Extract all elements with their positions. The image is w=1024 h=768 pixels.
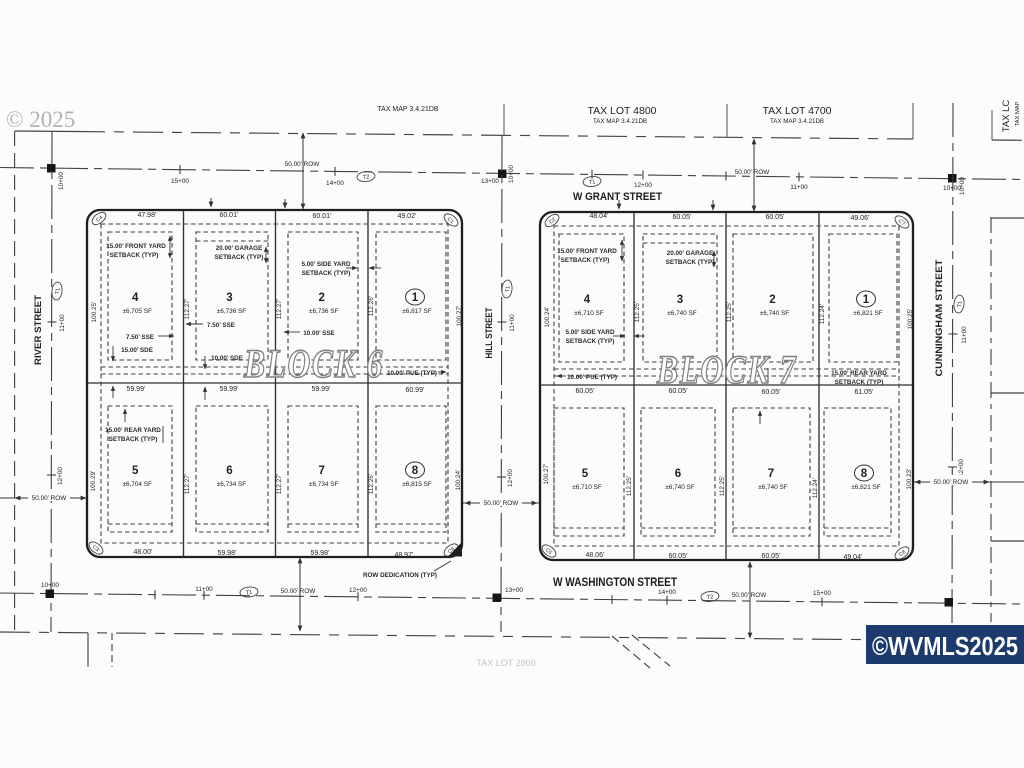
svg-text:TAX LOT 4800: TAX LOT 4800 [587, 105, 656, 117]
svg-text:7.50’ SSE: 7.50’ SSE [126, 334, 154, 341]
svg-text:48.97’: 48.97’ [394, 552, 414, 559]
svg-text:20.00’ GARAGE: 20.00’ GARAGE [667, 250, 714, 257]
svg-text:49.02’: 49.02’ [397, 213, 417, 220]
svg-text:15.00’ FRONT YARD: 15.00’ FRONT YARD [557, 248, 617, 255]
svg-text:8: 8 [861, 468, 868, 480]
svg-text:±6,740 SF: ±6,740 SF [667, 310, 697, 317]
svg-text:112.27’: 112.27’ [184, 473, 191, 494]
svg-text:59.98’: 59.98’ [217, 550, 237, 557]
svg-text:±6,734 SF: ±6,734 SF [309, 481, 339, 488]
svg-text:TAX MAP 3.4.21DB: TAX MAP 3.4.21DB [593, 118, 647, 125]
svg-text:BLOCK 6: BLOCK 6 [243, 341, 384, 386]
svg-text:TAX MAP: TAX MAP [1015, 101, 1021, 126]
svg-text:15+00: 15+00 [171, 178, 189, 185]
svg-text:HILL STREET: HILL STREET [484, 307, 495, 358]
svg-text:±6,817 SF: ±6,817 SF [402, 308, 432, 315]
svg-text:SETBACK (TYP): SETBACK (TYP) [561, 257, 610, 264]
svg-text:±6,734 SF: ±6,734 SF [217, 481, 247, 488]
svg-text:112.25’: 112.25’ [726, 301, 733, 322]
svg-text:T1: T1 [246, 590, 253, 597]
svg-text:10.00’ PUE (TYP): 10.00’ PUE (TYP) [387, 370, 437, 377]
svg-text:5.00’ SIDE YARD: 5.00’ SIDE YARD [301, 261, 350, 268]
svg-text:112.26’: 112.26’ [368, 295, 375, 316]
svg-text:T1: T1 [589, 179, 596, 186]
svg-text:12+00: 12+00 [634, 182, 652, 189]
svg-text:60.01’: 60.01’ [312, 213, 332, 220]
svg-text:100.25’: 100.25’ [907, 308, 914, 330]
svg-text:15.00’ SDE: 15.00’ SDE [121, 347, 153, 354]
svg-text:±6,736 SF: ±6,736 SF [309, 308, 339, 315]
svg-text:5: 5 [582, 468, 589, 480]
svg-text:48.06’: 48.06’ [585, 552, 605, 559]
svg-text:©WVMLS2025: ©WVMLS2025 [872, 631, 1018, 661]
svg-text:T1: T1 [505, 286, 512, 293]
svg-text:112.26’: 112.26’ [368, 473, 375, 494]
svg-text:W GRANT STREET: W GRANT STREET [573, 191, 662, 203]
svg-text:T1: T1 [957, 301, 964, 308]
svg-text:48.00’: 48.00’ [133, 549, 153, 556]
svg-text:±6,710 SF: ±6,710 SF [574, 310, 604, 317]
svg-text:49.06’: 49.06’ [850, 215, 870, 222]
svg-text:11+00: 11+00 [59, 314, 66, 332]
svg-text:47.98’: 47.98’ [137, 212, 157, 219]
svg-text:60.05’: 60.05’ [765, 214, 785, 221]
svg-text:2: 2 [318, 292, 324, 304]
svg-text:59.99’: 59.99’ [311, 386, 331, 393]
svg-text:BLOCK 7: BLOCK 7 [656, 347, 797, 392]
svg-text:±6,705 SF: ±6,705 SF [122, 308, 152, 315]
svg-text:60.05’: 60.05’ [761, 553, 781, 560]
svg-text:48.04’: 48.04’ [589, 213, 609, 220]
svg-text:12+00: 12+00 [507, 469, 514, 487]
svg-text:10.00’ PUE (TYP): 10.00’ PUE (TYP) [567, 374, 617, 381]
svg-text:15.00’ REAR YARD: 15.00’ REAR YARD [831, 370, 887, 377]
svg-text:RIVER STREET: RIVER STREET [33, 295, 44, 365]
svg-text:T2: T2 [363, 174, 370, 181]
svg-text:4: 4 [584, 294, 591, 306]
svg-text:50.00’ ROW: 50.00’ ROW [281, 588, 317, 595]
svg-text:CUNNINGHAM STREET: CUNNINGHAM STREET [934, 259, 945, 376]
svg-text:61.05’: 61.05’ [854, 389, 874, 396]
svg-text:±6,815 SF: ±6,815 SF [402, 481, 432, 488]
svg-text:SETBACK (TYP): SETBACK (TYP) [302, 270, 351, 277]
svg-text:10.00’ SDE: 10.00’ SDE [211, 355, 243, 362]
svg-text:T1: T1 [55, 288, 62, 295]
svg-text:5.00’ SIDE YARD: 5.00’ SIDE YARD [565, 329, 614, 336]
svg-text:±6,740 SF: ±6,740 SF [760, 310, 790, 317]
svg-text:59.98’: 59.98’ [310, 550, 330, 557]
svg-text:60.05’: 60.05’ [575, 388, 595, 395]
svg-text:50.00’ ROW: 50.00’ ROW [32, 495, 68, 502]
svg-text:112.24’: 112.24’ [812, 477, 819, 498]
svg-text:TAX LOT 2900: TAX LOT 2900 [476, 658, 535, 668]
svg-text:8: 8 [412, 465, 419, 477]
svg-text:T2: T2 [707, 594, 714, 601]
svg-text:100.27’: 100.27’ [543, 463, 550, 485]
svg-text:SETBACK (TYP): SETBACK (TYP) [666, 259, 715, 266]
svg-text:10+00: 10+00 [508, 165, 515, 183]
svg-text:SETBACK (TYP): SETBACK (TYP) [110, 252, 159, 259]
svg-text:100.23’: 100.23’ [906, 468, 913, 490]
svg-text:3: 3 [677, 294, 683, 306]
svg-text:11+00: 11+00 [195, 586, 213, 593]
svg-text:TAX MAP 3.4.21DB: TAX MAP 3.4.21DB [770, 118, 824, 125]
svg-text:±6,821 SF: ±6,821 SF [851, 484, 881, 491]
svg-text:6: 6 [226, 465, 232, 477]
svg-text:±6,704 SF: ±6,704 SF [122, 481, 152, 488]
svg-text:112.25’: 112.25’ [634, 301, 641, 322]
svg-text:SETBACK (TYP): SETBACK (TYP) [215, 254, 264, 261]
svg-text:49.04’: 49.04’ [843, 554, 863, 561]
svg-text:10.00’ SSE: 10.00’ SSE [303, 330, 335, 337]
svg-text:100.24’: 100.24’ [544, 306, 551, 328]
svg-text:4: 4 [132, 292, 139, 304]
svg-text:59.99’: 59.99’ [219, 386, 239, 393]
svg-text:±6,710 SF: ±6,710 SF [572, 484, 602, 491]
svg-text:SETBACK (TYP): SETBACK (TYP) [835, 379, 884, 386]
svg-text:TAX LC: TAX LC [1001, 100, 1012, 133]
svg-text:15.00’ FRONT YARD: 15.00’ FRONT YARD [106, 243, 166, 250]
svg-text:112.25’: 112.25’ [719, 475, 726, 496]
svg-text:±6,740 SF: ±6,740 SF [665, 484, 695, 491]
svg-text:6: 6 [675, 468, 681, 480]
svg-text:50.00’ ROW: 50.00’ ROW [934, 479, 970, 486]
svg-text:100.25’: 100.25’ [91, 301, 98, 323]
svg-text:2: 2 [769, 294, 775, 306]
svg-text:±6,740 SF: ±6,740 SF [758, 484, 788, 491]
svg-text:±6,821 SF: ±6,821 SF [853, 310, 883, 317]
svg-text:12+00: 12+00 [958, 459, 965, 477]
svg-text:11+00: 11+00 [790, 184, 808, 191]
svg-text:100.24’: 100.24’ [455, 469, 462, 491]
svg-text:11+00: 11+00 [961, 326, 968, 344]
svg-text:60.05’: 60.05’ [668, 553, 688, 560]
svg-text:W WASHINGTON STREET: W WASHINGTON STREET [553, 575, 678, 589]
svg-text:50.00’ ROW: 50.00’ ROW [735, 169, 771, 176]
svg-text:100.29’: 100.29’ [90, 470, 97, 492]
svg-text:3: 3 [226, 292, 232, 304]
svg-text:100.27’: 100.27’ [456, 305, 463, 327]
svg-text:±6,736 SF: ±6,736 SF [217, 308, 247, 315]
svg-text:50.00’ ROW: 50.00’ ROW [732, 592, 768, 599]
svg-text:1: 1 [863, 294, 870, 306]
svg-text:12+00: 12+00 [57, 467, 64, 485]
svg-text:© 2025: © 2025 [6, 107, 75, 132]
svg-text:7.50’ SSE: 7.50’ SSE [207, 322, 235, 329]
svg-text:10+00: 10+00 [959, 177, 966, 195]
svg-text:60.05’: 60.05’ [672, 214, 692, 221]
svg-text:12+00: 12+00 [349, 587, 367, 594]
svg-text:15+00: 15+00 [813, 590, 831, 597]
svg-text:13+00: 13+00 [505, 587, 523, 594]
svg-text:15.00’ REAR YARD: 15.00’ REAR YARD [105, 427, 161, 434]
svg-text:1: 1 [412, 292, 419, 304]
svg-text:TAX LOT 4700: TAX LOT 4700 [762, 105, 831, 117]
svg-text:14+00: 14+00 [326, 180, 344, 187]
svg-text:SETBACK (TYP): SETBACK (TYP) [109, 436, 158, 443]
svg-text:60.99’: 60.99’ [405, 387, 425, 394]
svg-text:TAX MAP 3.4.21DB: TAX MAP 3.4.21DB [377, 106, 439, 113]
svg-text:20.00’ GARAGE: 20.00’ GARAGE [216, 245, 263, 252]
svg-text:112.27’: 112.27’ [276, 298, 283, 319]
svg-text:112.25’: 112.25’ [626, 475, 633, 496]
svg-text:7: 7 [318, 465, 324, 477]
svg-text:ROW DEDICATION (TYP): ROW DEDICATION (TYP) [363, 572, 437, 579]
svg-text:10+00: 10+00 [41, 582, 59, 589]
svg-text:10+00: 10+00 [58, 172, 65, 190]
svg-text:112.27’: 112.27’ [276, 473, 283, 494]
svg-text:5: 5 [132, 465, 139, 477]
svg-text:50.00’ ROW: 50.00’ ROW [484, 500, 520, 507]
svg-text:112.27’: 112.27’ [184, 298, 191, 319]
svg-text:13+00: 13+00 [481, 178, 499, 185]
svg-text:60.01’: 60.01’ [219, 212, 239, 219]
svg-text:7: 7 [768, 468, 774, 480]
svg-text:112.24’: 112.24’ [819, 303, 826, 324]
svg-text:14+00: 14+00 [658, 589, 676, 596]
svg-text:11+00: 11+00 [509, 314, 516, 332]
svg-text:59.99’: 59.99’ [126, 386, 146, 393]
svg-text:50.00’ ROW: 50.00’ ROW [285, 161, 321, 168]
svg-text:SETBACK (TYP): SETBACK (TYP) [566, 338, 615, 345]
